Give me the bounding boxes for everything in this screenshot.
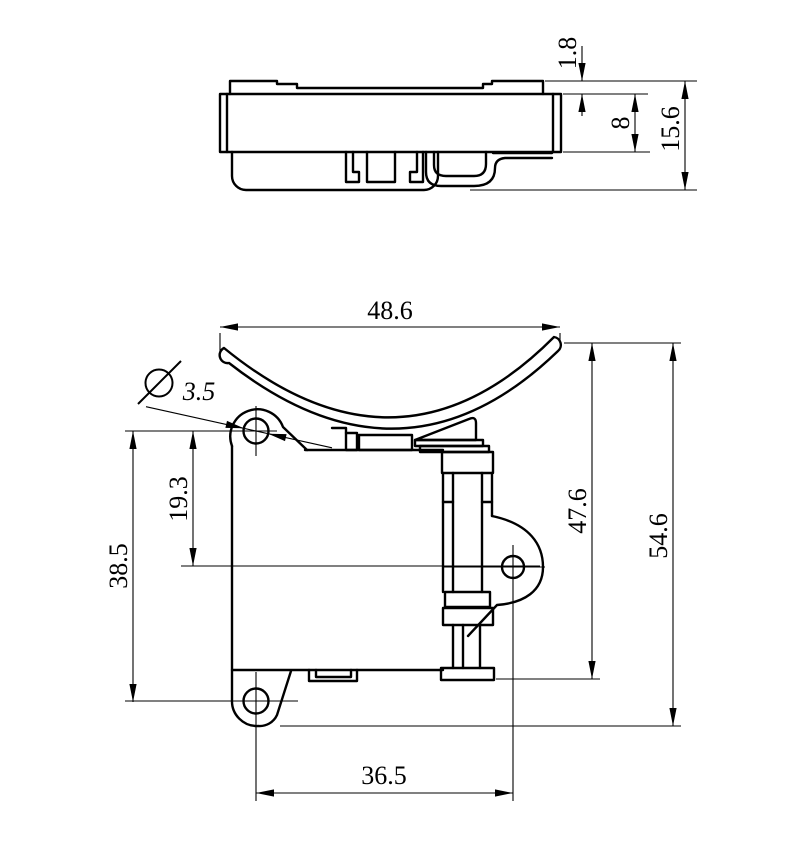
front-view-part-outline bbox=[220, 337, 561, 726]
arrowhead bbox=[578, 94, 585, 112]
dim-label-hole-horizontal-spacing: 36.5 bbox=[361, 761, 407, 790]
arrowhead bbox=[495, 789, 513, 796]
body-left-edge-and-lobe bbox=[232, 446, 291, 726]
side-view-part-outline bbox=[220, 81, 561, 190]
arrowhead bbox=[129, 684, 136, 702]
dim-label-hole-diameter: 3.5 bbox=[182, 377, 216, 406]
arrowhead bbox=[681, 81, 688, 99]
dim-label-overall-thickness: 15.6 bbox=[656, 106, 685, 152]
rail-top-band bbox=[442, 452, 493, 473]
side-snap-foot-left bbox=[346, 152, 359, 182]
dim-label-hole-vertical-spacing: 38.5 bbox=[104, 543, 133, 589]
side-view: 1.8 8 15.6 bbox=[220, 37, 697, 190]
side-view-dimensions: 1.8 8 15.6 bbox=[470, 37, 697, 190]
arrowhead bbox=[220, 323, 238, 330]
top-step bbox=[332, 428, 346, 433]
front-view: 48.6 3.5 19.3 38.5 47.6 54.6 36.5 bbox=[104, 296, 681, 801]
top-slot bbox=[346, 433, 357, 450]
arrowhead bbox=[669, 343, 676, 361]
arrowhead bbox=[631, 134, 638, 152]
arrowhead bbox=[588, 343, 595, 361]
drawing-sheet: 1.8 8 15.6 bbox=[0, 0, 800, 860]
front-view-dimensions: 48.6 3.5 19.3 38.5 47.6 54.6 36.5 bbox=[104, 296, 681, 801]
dim-label-flange-thickness: 1.8 bbox=[553, 37, 582, 70]
side-hook-channel bbox=[434, 152, 486, 176]
side-snap-foot-right bbox=[410, 152, 423, 182]
rail-verticals-upper bbox=[443, 473, 492, 592]
arrowhead bbox=[189, 548, 196, 566]
arrowhead bbox=[669, 708, 676, 726]
side-slot-middle bbox=[367, 152, 395, 182]
arrowhead bbox=[256, 789, 274, 796]
diameter-symbol-icon bbox=[138, 361, 181, 404]
rail-band-1 bbox=[445, 592, 490, 607]
side-hook-outer bbox=[426, 152, 552, 186]
side-top-tabs bbox=[230, 81, 543, 94]
arrowhead bbox=[268, 434, 286, 441]
dim-label-overall-width: 48.6 bbox=[367, 296, 413, 325]
bottom-boss bbox=[309, 670, 357, 681]
arrowhead bbox=[542, 323, 560, 330]
side-bottom-housing bbox=[232, 152, 438, 190]
saddle-band bbox=[220, 337, 561, 429]
dim-label-overall-height: 54.6 bbox=[644, 513, 673, 559]
side-body bbox=[220, 94, 561, 152]
arrowhead bbox=[189, 431, 196, 449]
arrowhead bbox=[129, 431, 136, 449]
technical-drawing: 1.8 8 15.6 bbox=[0, 0, 800, 860]
top-bar bbox=[359, 435, 412, 450]
arrowhead bbox=[631, 94, 638, 112]
arrowhead bbox=[588, 661, 595, 679]
arrowhead bbox=[681, 172, 688, 190]
dim-label-side-height: 47.6 bbox=[563, 488, 592, 534]
rail-foot bbox=[441, 668, 494, 680]
dim-label-body-thickness: 8 bbox=[606, 117, 635, 130]
dim-label-hole-to-centerline: 19.3 bbox=[164, 476, 193, 522]
rail-verticals-lower bbox=[453, 625, 480, 668]
